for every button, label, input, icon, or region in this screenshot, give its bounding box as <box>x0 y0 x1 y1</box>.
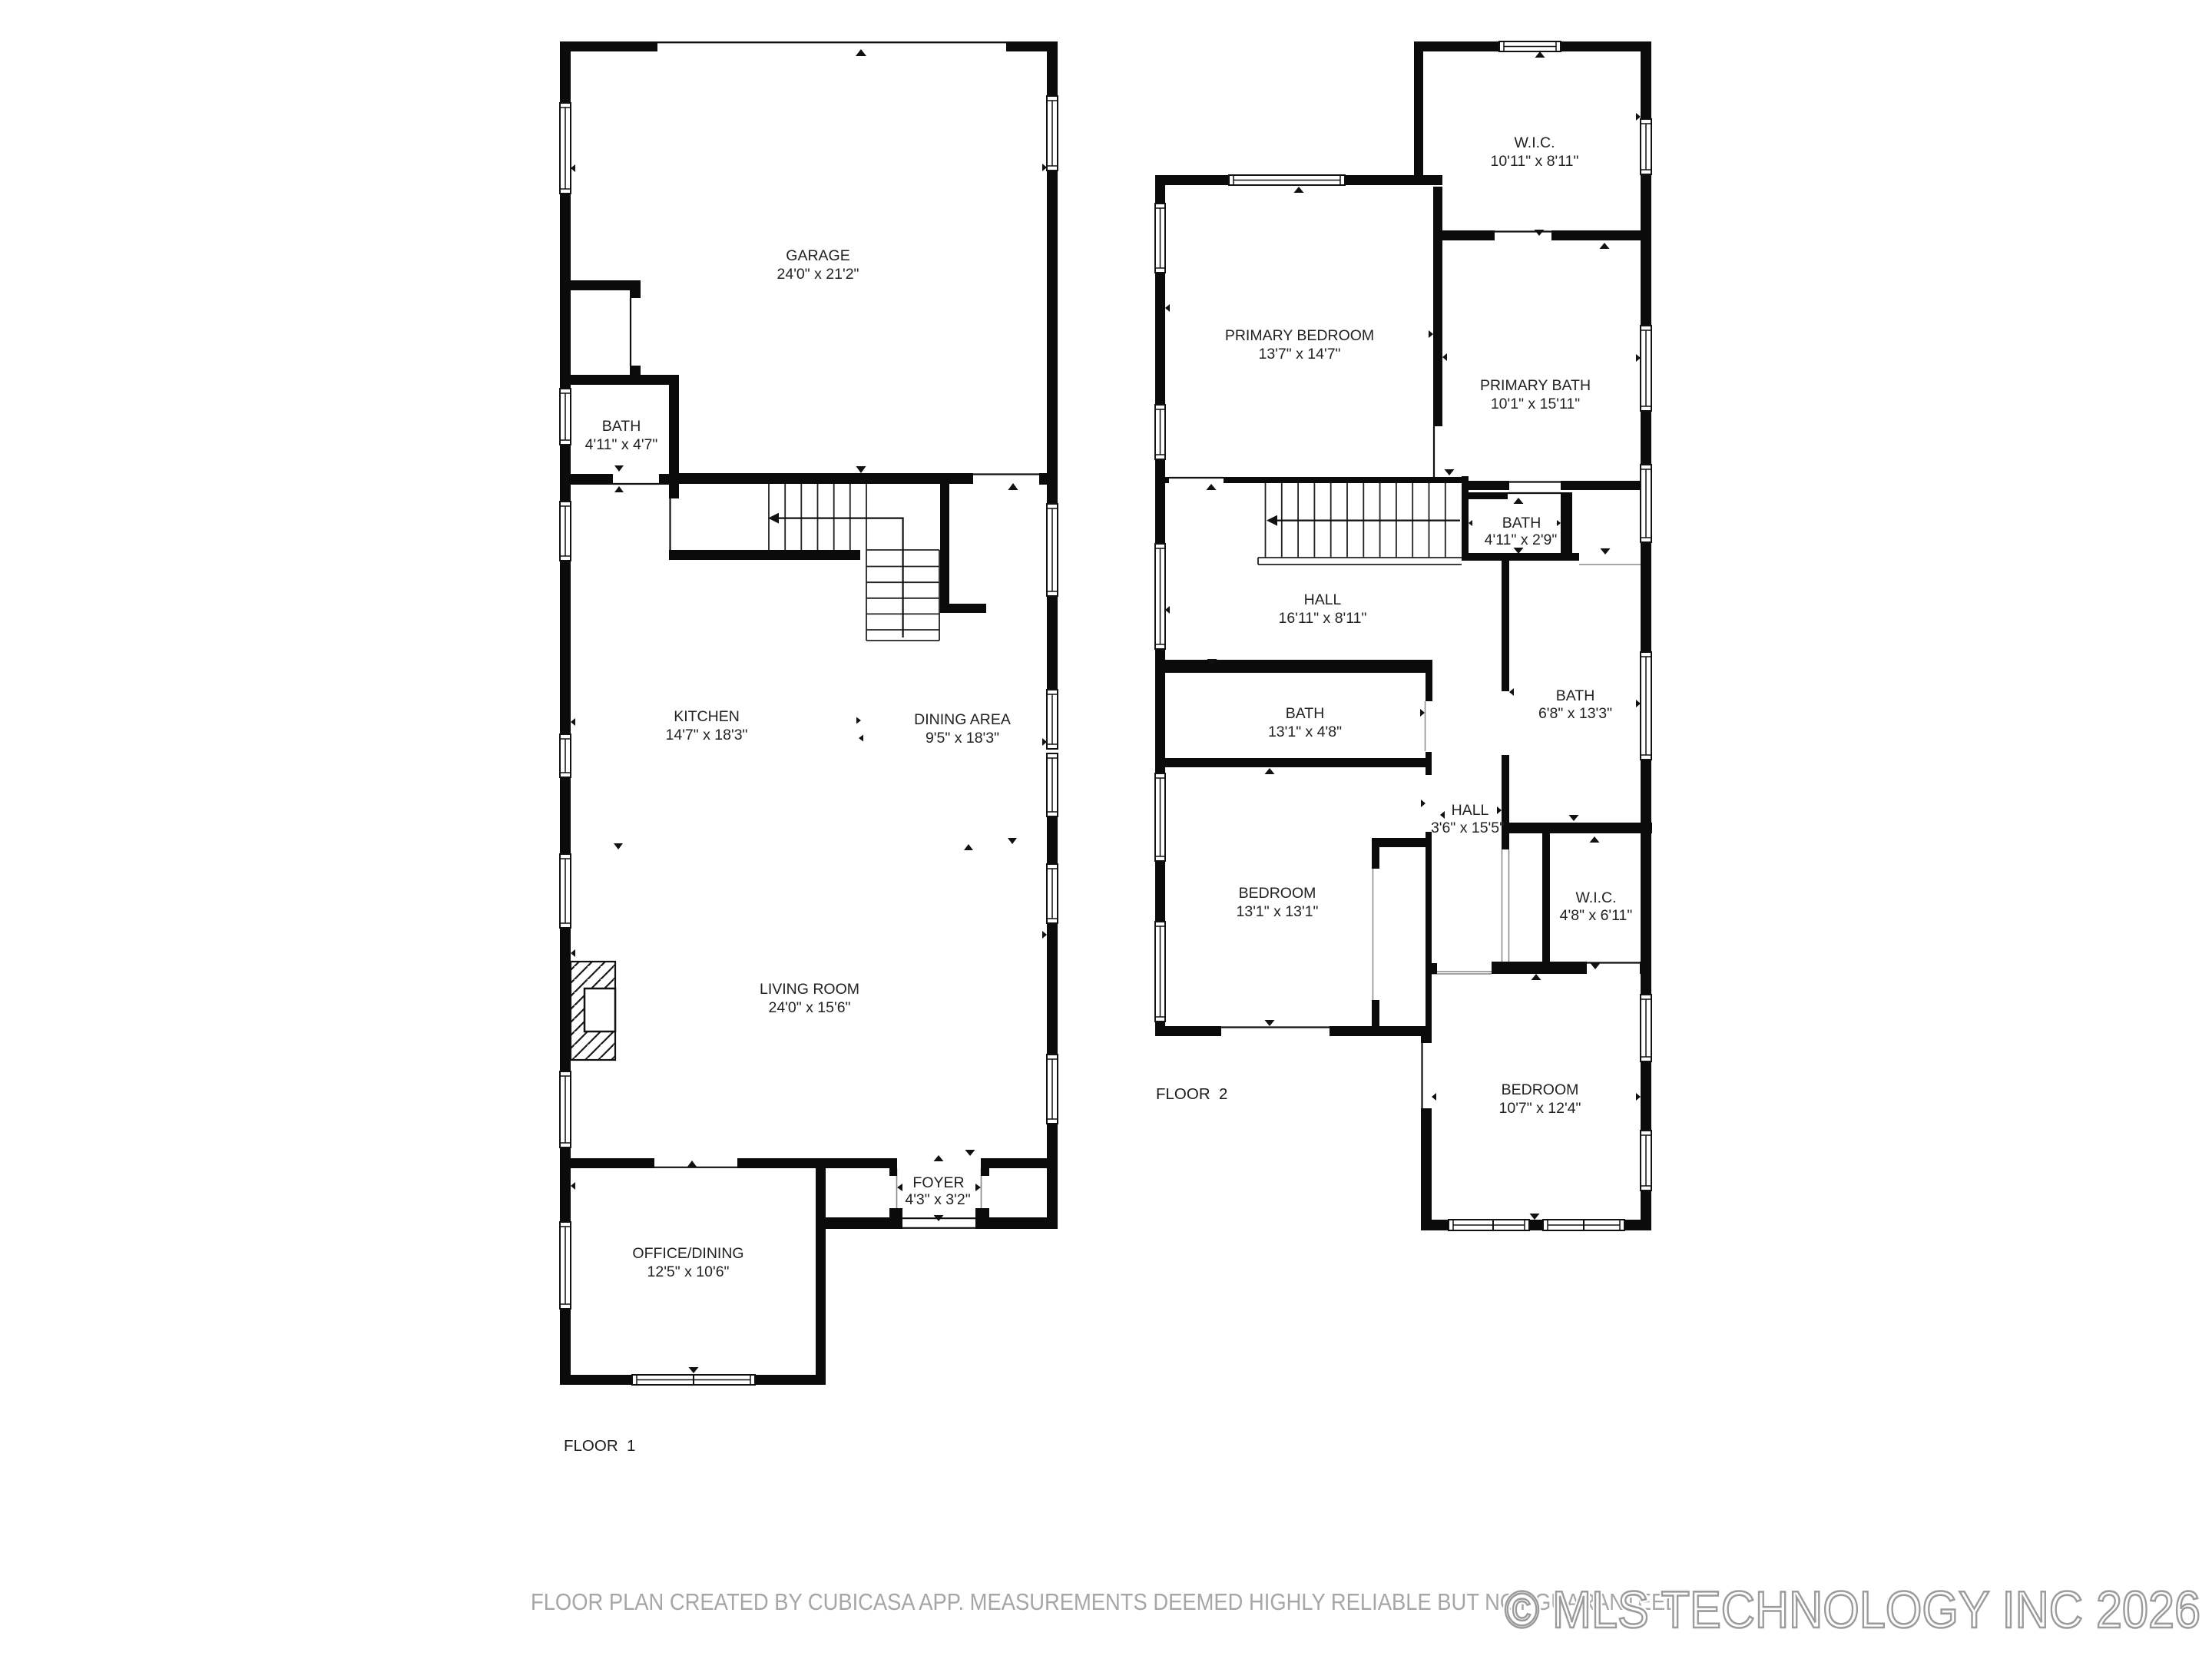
svg-text:GARAGE: GARAGE <box>786 247 849 264</box>
svg-text:FOYER: FOYER <box>912 1174 964 1191</box>
svg-text:BATH: BATH <box>1502 515 1541 531</box>
svg-text:W.I.C.: W.I.C. <box>1575 889 1616 906</box>
svg-text:4'11" x 2'9": 4'11" x 2'9" <box>1485 531 1558 548</box>
svg-text:24'0" x 21'2": 24'0" x 21'2" <box>777 266 859 283</box>
svg-text:PRIMARY BATH: PRIMARY BATH <box>1480 377 1591 394</box>
svg-text:BEDROOM: BEDROOM <box>1239 885 1316 902</box>
svg-text:OFFICE/DINING: OFFICE/DINING <box>632 1245 743 1262</box>
svg-text:24'0" x 15'6": 24'0" x 15'6" <box>769 999 851 1016</box>
svg-text:HALL: HALL <box>1452 802 1489 819</box>
svg-text:W.I.C.: W.I.C. <box>1514 134 1555 151</box>
svg-text:KITCHEN: KITCHEN <box>674 708 740 725</box>
svg-text:HALL: HALL <box>1304 591 1342 608</box>
svg-text:FLOOR 2: FLOOR 2 <box>1156 1085 1227 1103</box>
svg-text:16'11" x 8'11": 16'11" x 8'11" <box>1279 610 1367 627</box>
svg-text:DINING AREA: DINING AREA <box>914 711 1011 728</box>
svg-text:BATH: BATH <box>1286 705 1325 722</box>
svg-text:6'8" x 13'3": 6'8" x 13'3" <box>1538 705 1612 722</box>
svg-text:10'1" x 15'11": 10'1" x 15'11" <box>1491 396 1580 412</box>
svg-text:13'1" x 13'1": 13'1" x 13'1" <box>1237 903 1319 920</box>
svg-text:BATH: BATH <box>602 418 641 435</box>
svg-text:3'6" x 15'5": 3'6" x 15'5" <box>1431 820 1505 836</box>
svg-text:PRIMARY BEDROOM: PRIMARY BEDROOM <box>1225 327 1374 344</box>
svg-text:13'7" x 14'7": 13'7" x 14'7" <box>1259 346 1341 363</box>
svg-text:BEDROOM: BEDROOM <box>1502 1081 1579 1098</box>
svg-text:4'8" x 6'11": 4'8" x 6'11" <box>1560 907 1633 924</box>
svg-text:© MLS TECHNOLOGY INC 2026: © MLS TECHNOLOGY INC 2026 <box>1505 1581 2200 1639</box>
svg-text:14'7" x 18'3": 14'7" x 18'3" <box>666 727 748 743</box>
svg-text:12'5" x 10'6": 12'5" x 10'6" <box>647 1263 730 1280</box>
svg-text:4'11" x 4'7": 4'11" x 4'7" <box>585 436 658 453</box>
svg-text:4'3" x 3'2": 4'3" x 3'2" <box>905 1191 970 1208</box>
svg-text:10'7" x 12'4": 10'7" x 12'4" <box>1499 1100 1581 1117</box>
svg-text:LIVING ROOM: LIVING ROOM <box>760 981 859 998</box>
svg-text:FLOOR 1: FLOOR 1 <box>564 1437 635 1455</box>
svg-text:10'11" x 8'11": 10'11" x 8'11" <box>1491 153 1579 170</box>
svg-text:13'1" x 4'8": 13'1" x 4'8" <box>1268 724 1342 740</box>
svg-text:BATH: BATH <box>1556 687 1595 704</box>
svg-text:9'5" x 18'3": 9'5" x 18'3" <box>926 730 999 747</box>
